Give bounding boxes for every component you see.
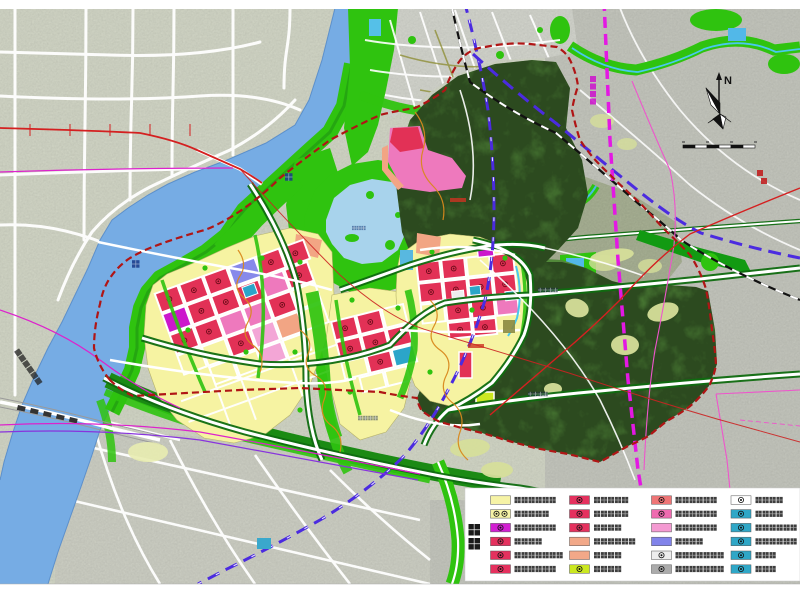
svg-text:N: N — [724, 75, 732, 87]
